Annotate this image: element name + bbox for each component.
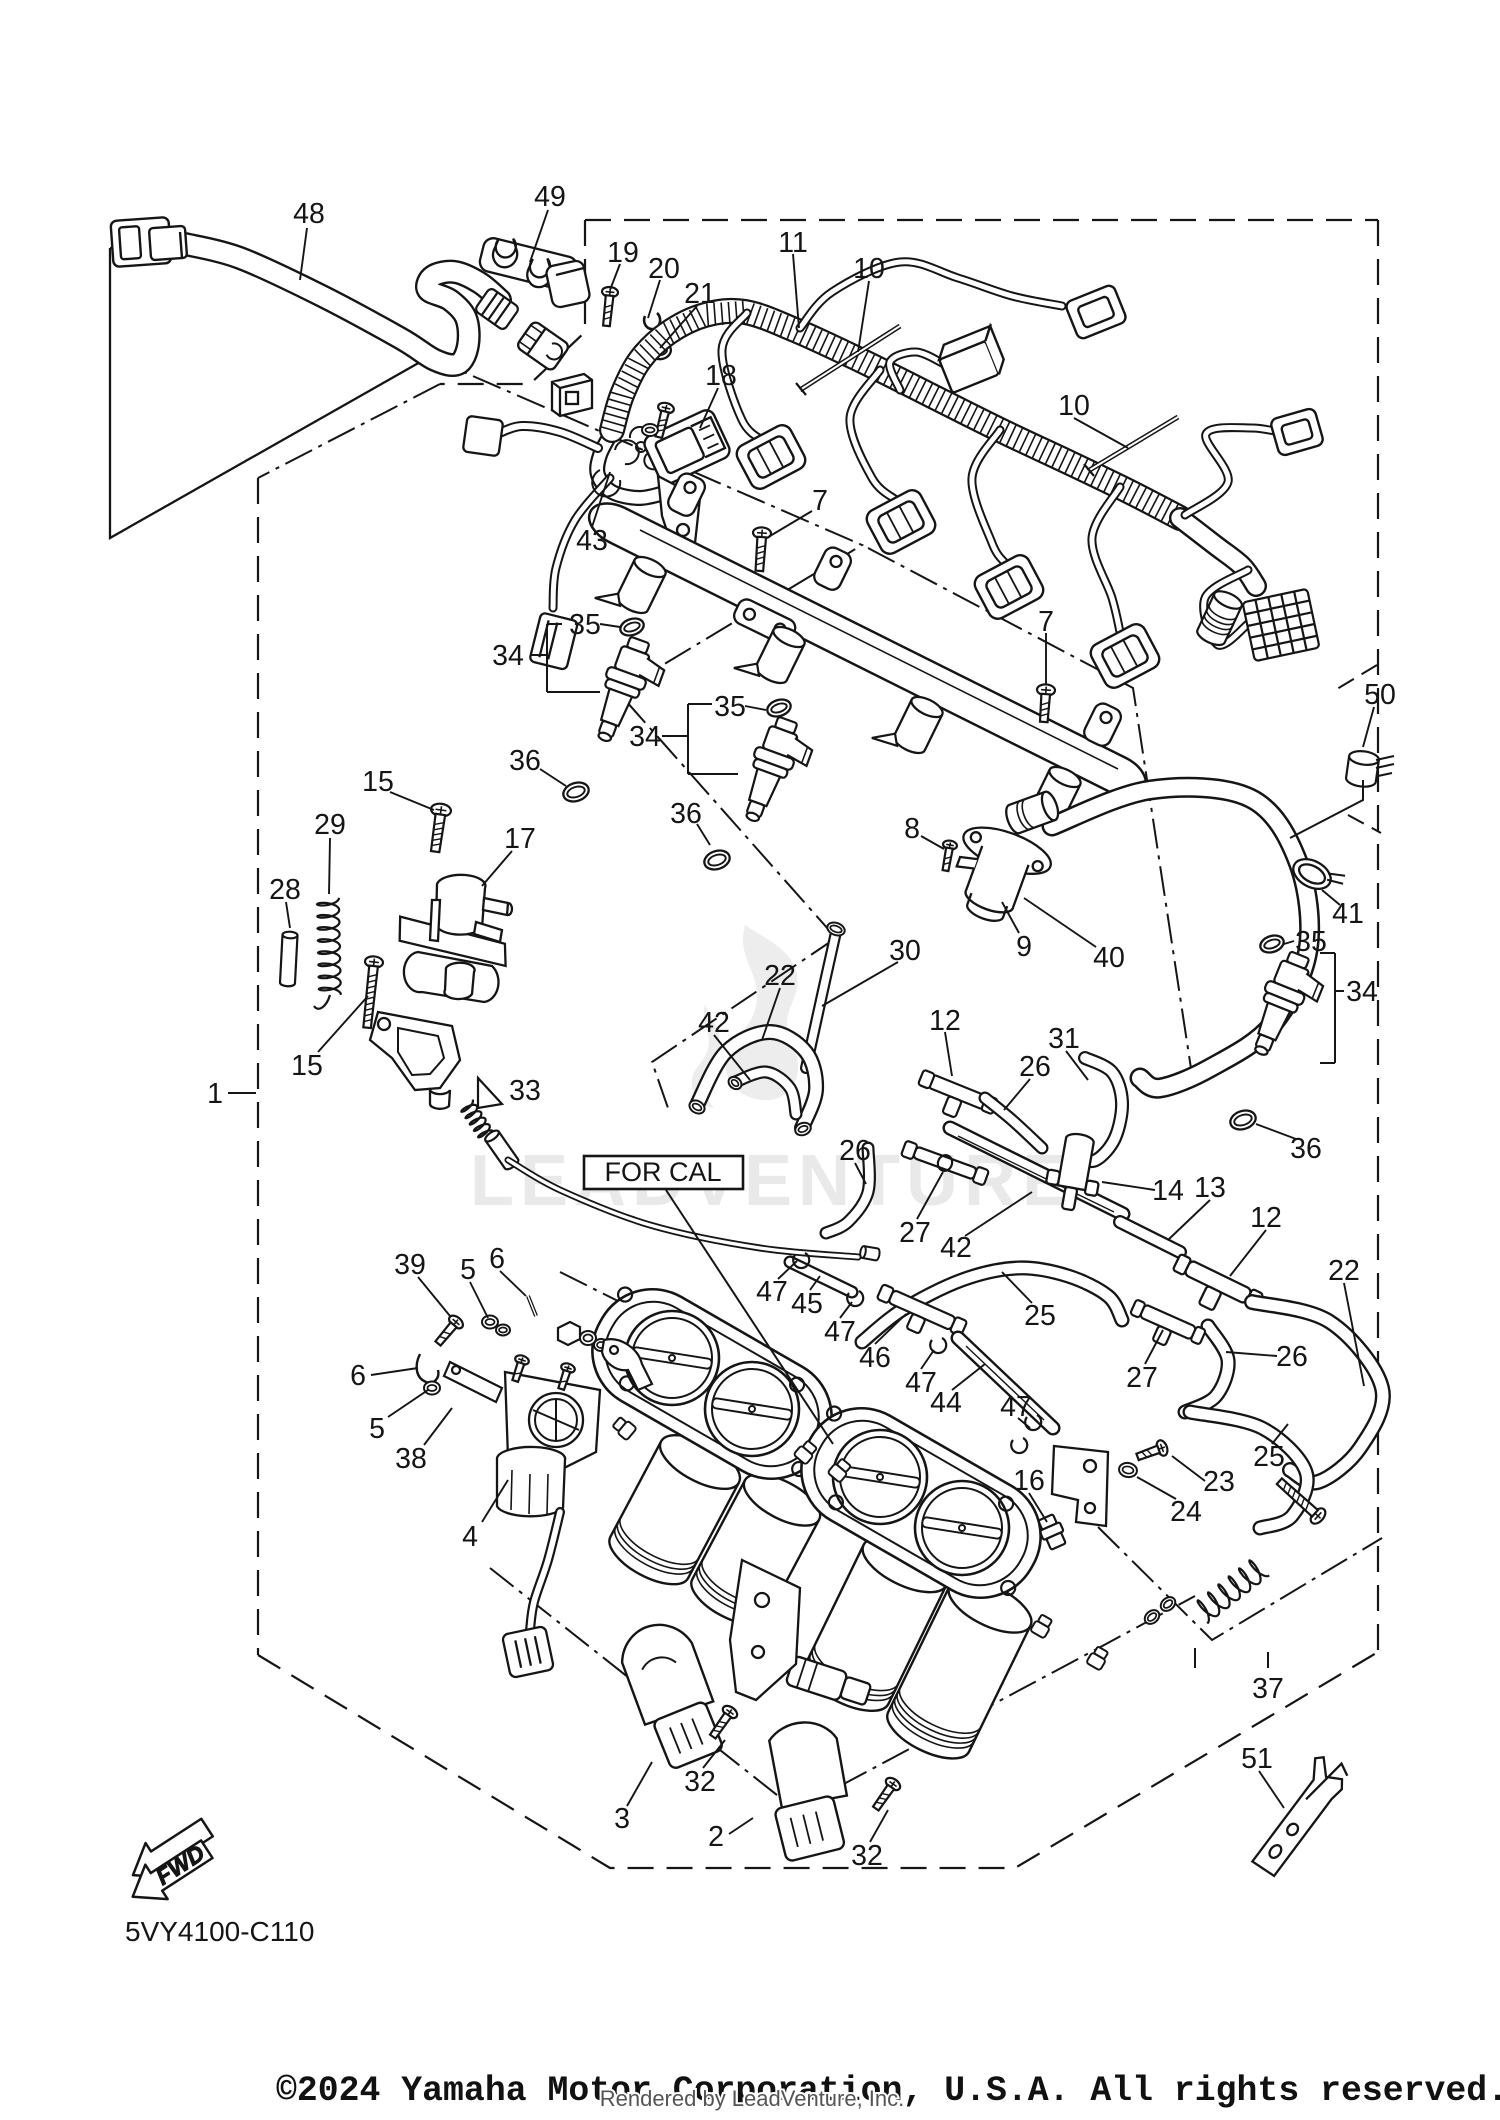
svg-text:20: 20	[648, 253, 680, 285]
svg-text:15: 15	[291, 1050, 323, 1082]
svg-text:35: 35	[569, 609, 601, 641]
svg-text:22: 22	[764, 960, 796, 992]
svg-text:7: 7	[812, 485, 828, 517]
svg-text:33: 33	[509, 1075, 541, 1107]
svg-text:34: 34	[492, 640, 524, 672]
svg-text:5: 5	[460, 1254, 476, 1286]
svg-text:46: 46	[859, 1342, 891, 1374]
svg-text:22: 22	[1328, 1255, 1360, 1287]
svg-text:37: 37	[1252, 1673, 1284, 1705]
svg-text:30: 30	[889, 935, 921, 967]
svg-text:Rendered by LeadVenture, Inc.: Rendered by LeadVenture, Inc.	[600, 2086, 905, 2111]
svg-text:45: 45	[791, 1288, 823, 1320]
svg-text:26: 26	[839, 1135, 871, 1167]
svg-text:10: 10	[853, 253, 885, 285]
svg-text:14: 14	[1152, 1175, 1184, 1207]
svg-text:36: 36	[509, 745, 541, 777]
svg-text:12: 12	[1250, 1202, 1282, 1234]
svg-text:49: 49	[534, 181, 566, 213]
svg-text:39: 39	[394, 1249, 426, 1281]
svg-text:44: 44	[930, 1387, 962, 1419]
svg-text:9: 9	[1016, 931, 1032, 963]
svg-text:FOR CAL: FOR CAL	[604, 1157, 721, 1187]
svg-text:42: 42	[940, 1232, 972, 1264]
svg-text:2: 2	[708, 1821, 724, 1853]
svg-text:17: 17	[504, 823, 536, 855]
svg-text:15: 15	[362, 766, 394, 798]
svg-text:1: 1	[207, 1078, 223, 1110]
svg-text:34: 34	[1346, 976, 1378, 1008]
svg-text:34: 34	[629, 721, 661, 753]
svg-text:32: 32	[851, 1840, 883, 1872]
svg-text:27: 27	[1126, 1362, 1158, 1394]
svg-text:10: 10	[1058, 390, 1090, 422]
svg-text:31: 31	[1048, 1023, 1080, 1055]
svg-text:13: 13	[1194, 1172, 1226, 1204]
svg-text:18: 18	[705, 360, 737, 392]
svg-text:38: 38	[395, 1443, 427, 1475]
svg-text:5VY4100-C110: 5VY4100-C110	[125, 1916, 314, 1947]
svg-text:51: 51	[1241, 1743, 1273, 1775]
svg-text:4: 4	[462, 1521, 478, 1553]
svg-text:25: 25	[1253, 1441, 1285, 1473]
svg-text:47: 47	[1000, 1391, 1032, 1423]
svg-text:19: 19	[607, 237, 639, 269]
svg-text:35: 35	[714, 691, 746, 723]
svg-text:29: 29	[314, 809, 346, 841]
svg-text:24: 24	[1170, 1496, 1202, 1528]
svg-text:16: 16	[1013, 1465, 1045, 1497]
svg-text:26: 26	[1276, 1341, 1308, 1373]
svg-text:23: 23	[1203, 1466, 1235, 1498]
svg-text:47: 47	[756, 1276, 788, 1308]
svg-text:6: 6	[489, 1243, 505, 1275]
svg-text:48: 48	[293, 198, 325, 230]
svg-text:43: 43	[576, 525, 608, 557]
svg-text:21: 21	[684, 278, 716, 310]
svg-text:27: 27	[899, 1217, 931, 1249]
svg-text:28: 28	[269, 874, 301, 906]
svg-text:3: 3	[614, 1803, 630, 1835]
svg-text:6: 6	[350, 1360, 366, 1392]
svg-text:26: 26	[1019, 1051, 1051, 1083]
svg-text:50: 50	[1364, 679, 1396, 711]
svg-text:47: 47	[824, 1316, 856, 1348]
svg-text:5: 5	[369, 1413, 385, 1445]
svg-text:8: 8	[904, 813, 920, 845]
svg-text:40: 40	[1093, 942, 1125, 974]
svg-text:42: 42	[698, 1007, 730, 1039]
svg-text:25: 25	[1024, 1300, 1056, 1332]
svg-text:32: 32	[684, 1766, 716, 1798]
